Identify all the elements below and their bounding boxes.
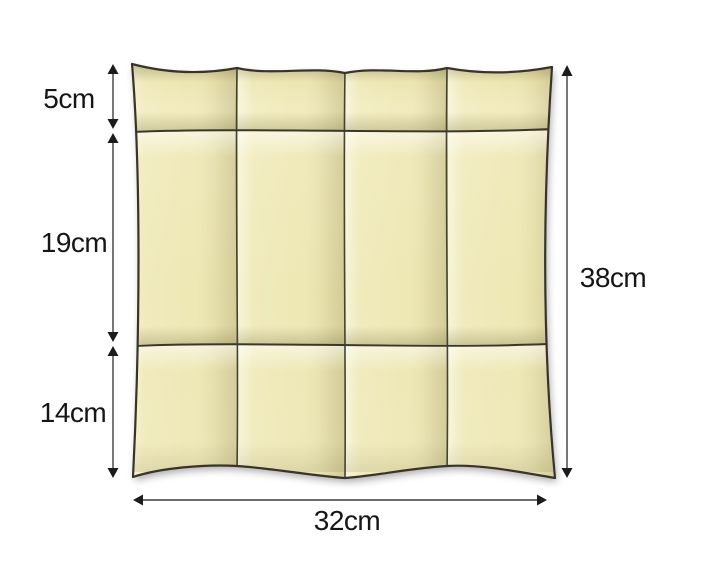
fold1-shadow bbox=[126, 112, 560, 131]
arrowhead-down-icon bbox=[562, 468, 573, 478]
arrowhead-down-icon bbox=[108, 332, 119, 342]
arrowhead-up-icon bbox=[108, 346, 119, 356]
fold1-highlight bbox=[126, 131, 560, 157]
fold2-shadow bbox=[126, 326, 560, 344]
cloth bbox=[126, 58, 560, 483]
arrowhead-down-icon bbox=[108, 119, 119, 129]
arrowhead-up-icon bbox=[108, 133, 119, 143]
arrowhead-left-icon bbox=[133, 495, 143, 506]
right-dimension bbox=[562, 65, 573, 478]
cloth-shading bbox=[126, 58, 560, 483]
dim-label-row-top: 5cm bbox=[43, 83, 94, 114]
dim-label-row-middle: 19cm bbox=[41, 227, 107, 258]
diagram-canvas: 5cm 19cm 14cm 38cm 32cm bbox=[0, 0, 705, 570]
arrowhead-up-icon bbox=[562, 65, 573, 76]
bottom-dimension bbox=[133, 495, 547, 506]
arrowhead-up-icon bbox=[108, 64, 119, 74]
dim-label-total-width: 32cm bbox=[314, 505, 380, 536]
cloth-dimension-diagram: 5cm 19cm 14cm 38cm 32cm bbox=[0, 0, 705, 570]
dim-label-total-height: 38cm bbox=[580, 262, 646, 293]
left-dimension-chain bbox=[108, 64, 119, 478]
arrowhead-down-icon bbox=[108, 468, 119, 478]
dim-label-row-bottom: 14cm bbox=[40, 397, 106, 428]
arrowhead-right-icon bbox=[537, 495, 547, 506]
fold2-highlight bbox=[126, 345, 560, 371]
